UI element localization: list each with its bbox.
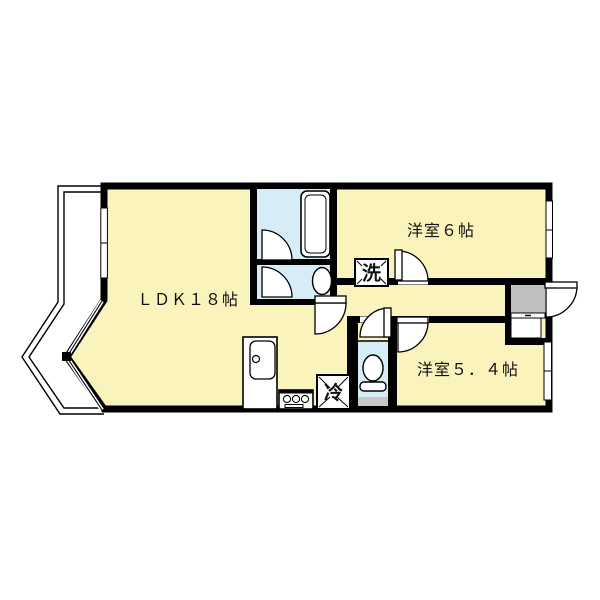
bedroom-6-label: 洋室６帖 — [407, 221, 475, 240]
bedroom-6-door-leaf — [395, 250, 402, 280]
bedroom-5-4-label: 洋室５．４帖 — [417, 360, 519, 379]
floorplan-page: 冷 洗 ＬＤＫ１８帖 洋室６帖 洋室５．４帖 — [0, 0, 600, 600]
toilet-door-leaf — [384, 308, 391, 337]
entry-hall-floor — [511, 318, 541, 338]
left-window — [101, 208, 108, 278]
bathtub — [301, 191, 330, 257]
fridge-label: 冷 — [324, 381, 343, 404]
entrance-door — [546, 286, 577, 317]
washer-label: 洗 — [362, 262, 381, 285]
kitchen-counter — [243, 337, 277, 409]
bedroom-5-4-door-leaf — [397, 317, 428, 323]
bedroom-6-window — [546, 201, 553, 258]
sink-faucet — [253, 356, 260, 363]
washer-symbol: 洗 — [355, 259, 388, 286]
toilet-counter — [358, 397, 388, 406]
washbasin — [313, 268, 332, 295]
floorplan-svg: 冷 洗 ＬＤＫ１８帖 洋室６帖 洋室５．４帖 — [0, 0, 600, 600]
fridge-symbol: 冷 — [317, 375, 350, 409]
bedroom-5-4-window — [544, 342, 552, 400]
genkan-floor — [511, 285, 545, 313]
entrance-door-leaf — [545, 282, 577, 288]
stove — [279, 390, 313, 409]
ldk-label: ＬＤＫ１８帖 — [137, 290, 239, 309]
entry-step — [511, 313, 545, 318]
hallway-washroom-door-leaf — [315, 296, 346, 303]
